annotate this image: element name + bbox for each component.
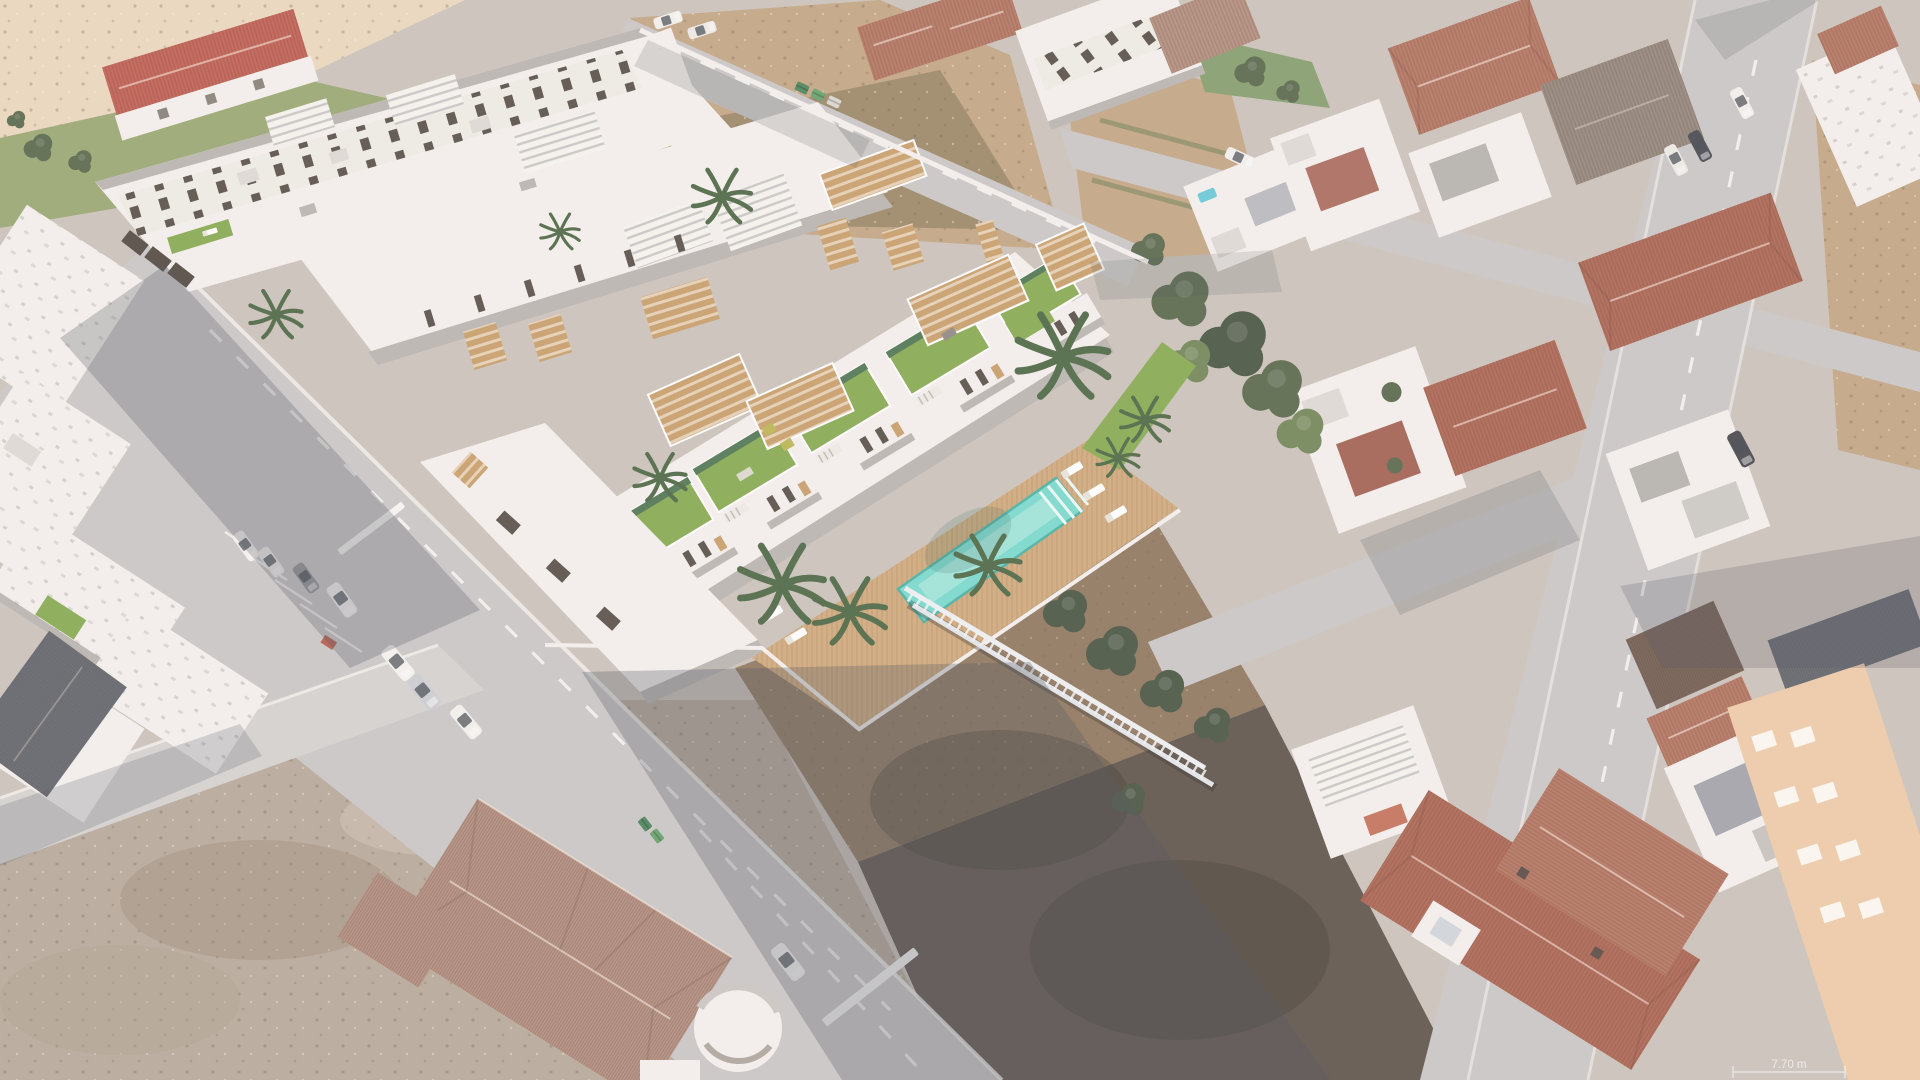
aerial-photo-canvas: 7.70 m — [0, 0, 1920, 1080]
haze-overlay-cool — [0, 0, 1920, 1080]
aerial-photo: 7.70 m — [0, 0, 1920, 1080]
dimension-label: 7.70 m — [1771, 1059, 1806, 1071]
